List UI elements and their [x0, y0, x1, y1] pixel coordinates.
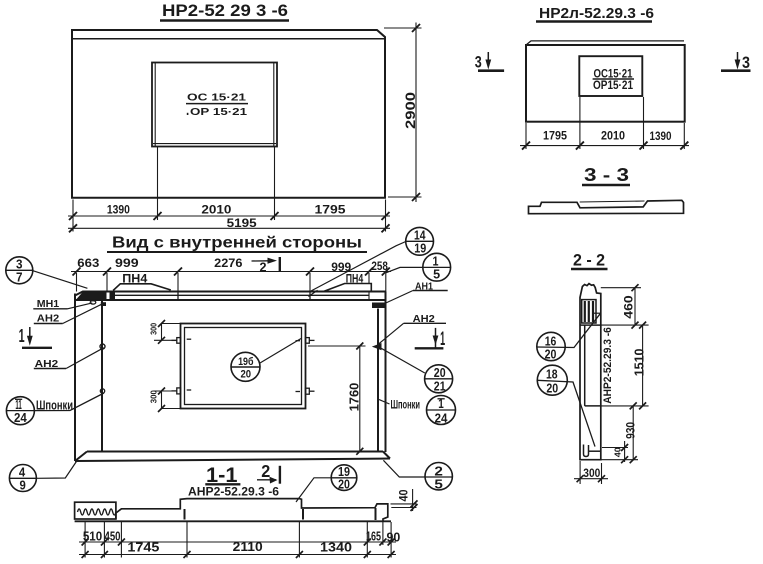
svg-text:1795: 1795 — [315, 203, 346, 217]
svg-text:20: 20 — [546, 382, 558, 396]
svg-text:3: 3 — [475, 54, 482, 72]
svg-text:2010: 2010 — [601, 131, 625, 143]
svg-text:300: 300 — [148, 390, 158, 403]
svg-text:21: 21 — [434, 380, 446, 394]
svg-text:2110: 2110 — [233, 540, 263, 554]
svg-text:16: 16 — [545, 334, 557, 348]
svg-text:1: 1 — [440, 329, 445, 350]
svg-text:24: 24 — [435, 411, 448, 425]
svg-text:ОС 15·21: ОС 15·21 — [187, 92, 246, 104]
svg-text:ПН4: ПН4 — [122, 274, 148, 286]
svg-text:20: 20 — [434, 366, 446, 380]
svg-text:300: 300 — [583, 468, 600, 480]
svg-text:Шпонки: Шпонки — [391, 398, 421, 412]
svg-text:19: 19 — [414, 241, 426, 255]
svg-text:3 - 3: 3 - 3 — [584, 165, 629, 185]
svg-text:300: 300 — [148, 323, 158, 335]
svg-text:2: 2 — [261, 461, 270, 481]
svg-text:90: 90 — [387, 530, 401, 544]
svg-text:1795: 1795 — [543, 131, 568, 143]
svg-text:40: 40 — [397, 489, 411, 501]
svg-text:20: 20 — [241, 369, 252, 381]
svg-text:1390: 1390 — [107, 203, 130, 217]
svg-text:2: 2 — [260, 259, 267, 274]
svg-text:40: 40 — [612, 447, 622, 457]
svg-text:20: 20 — [338, 478, 350, 492]
svg-text:АНР2-52.29.3 -6: АНР2-52.29.3 -6 — [188, 484, 279, 498]
svg-text:2: 2 — [434, 464, 443, 478]
svg-text:3: 3 — [742, 54, 750, 72]
svg-text:НР2л-52.29.3 -6: НР2л-52.29.3 -6 — [539, 6, 654, 22]
svg-text:20: 20 — [545, 347, 557, 361]
svg-text:1: 1 — [433, 254, 439, 268]
svg-text:999: 999 — [331, 260, 351, 274]
svg-text:663: 663 — [77, 256, 99, 270]
svg-text:1340: 1340 — [320, 541, 352, 555]
svg-text:АН2: АН2 — [37, 313, 60, 324]
svg-text:3: 3 — [16, 257, 23, 271]
svg-text:Вид с внутренней стороны: Вид с внутренней стороны — [112, 235, 362, 252]
svg-text:18: 18 — [546, 368, 558, 382]
svg-text:9: 9 — [19, 478, 25, 492]
svg-text:930: 930 — [625, 422, 637, 439]
svg-text:450: 450 — [105, 529, 121, 543]
svg-text:7: 7 — [16, 270, 23, 284]
svg-text:5195: 5195 — [227, 216, 257, 230]
svg-text:1510: 1510 — [633, 349, 647, 377]
svg-text:999: 999 — [115, 256, 139, 270]
svg-text:1760: 1760 — [346, 383, 361, 412]
svg-text:4: 4 — [19, 465, 25, 479]
svg-text:19б: 19б — [238, 356, 254, 368]
svg-text:АНР2-52.29.3 -6: АНР2-52.29.3 -6 — [602, 327, 614, 404]
svg-text:5: 5 — [433, 268, 440, 282]
svg-text:14: 14 — [414, 228, 426, 242]
svg-text:1390: 1390 — [650, 131, 672, 143]
svg-text:НР2-52 29 3 -6: НР2-52 29 3 -6 — [162, 1, 288, 20]
svg-text:ПН4: ПН4 — [346, 274, 364, 286]
svg-text:ОР 15·21: ОР 15·21 — [190, 106, 247, 118]
svg-text:1745: 1745 — [127, 541, 159, 555]
svg-text:11: 11 — [15, 398, 21, 412]
svg-text:165: 165 — [366, 529, 381, 543]
svg-text:2900: 2900 — [402, 92, 418, 129]
svg-text:5: 5 — [434, 478, 443, 492]
svg-text:2010: 2010 — [201, 203, 231, 217]
svg-text:2 - 2: 2 - 2 — [573, 250, 605, 269]
svg-text:24: 24 — [14, 411, 27, 425]
svg-text:19: 19 — [338, 465, 350, 479]
svg-text:2276: 2276 — [214, 256, 243, 270]
svg-text:1: 1 — [19, 325, 25, 346]
svg-text:460: 460 — [624, 295, 636, 318]
svg-text:258: 258 — [371, 259, 388, 273]
svg-text:ОР15·21: ОР15·21 — [593, 78, 633, 92]
svg-text:510: 510 — [83, 529, 102, 543]
